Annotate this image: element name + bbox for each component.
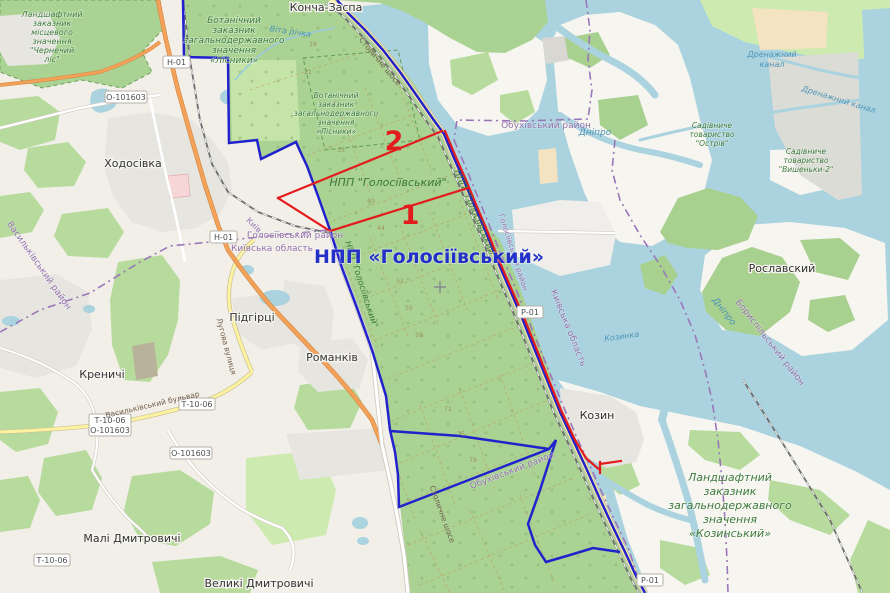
svg-text:Ландшафтний: Ландшафтний (20, 10, 82, 19)
svg-text:"Вишеньки-2": "Вишеньки-2" (779, 165, 834, 174)
svg-text:товариство: товариство (689, 130, 735, 139)
badge-o101603-south: О-101603 (170, 447, 212, 459)
badge-h01-north: Н-01 (163, 56, 190, 68)
label-romankiv: Романків (306, 351, 358, 364)
svg-text:«Лісники»: «Лісники» (316, 127, 357, 136)
svg-text:значення: значення (318, 118, 355, 127)
label-krenychi: Креничі (79, 368, 124, 381)
annotation-number-2: 2 (385, 126, 404, 157)
svg-text:загальнодержавного: загальнодержавного (294, 109, 379, 118)
svg-text:«Лісники»: «Лісники» (210, 56, 258, 66)
label-holosiivskyi-raion: Голосіївський район (247, 231, 343, 241)
svg-text:Т-10-06: Т-10-06 (35, 556, 67, 565)
svg-text:52: 52 (396, 278, 404, 285)
svg-text:21: 21 (304, 69, 312, 76)
svg-text:загальнодержавного: загальнодержавного (183, 36, 285, 46)
svg-text:33: 33 (337, 147, 345, 154)
svg-text:заказник: заказник (33, 19, 72, 28)
label-roslavskyi: Рославский (749, 262, 816, 275)
label-sadivnyche-ostriv: Садівниче товариство "Острів" (689, 121, 735, 148)
svg-text:79: 79 (469, 457, 477, 464)
svg-text:О-101603: О-101603 (90, 426, 130, 435)
svg-text:значення: значення (703, 513, 757, 526)
svg-text:заказник: заказник (704, 485, 757, 498)
badge-o101603-north: О-101603 (105, 91, 147, 103)
svg-text:Р-01: Р-01 (641, 576, 659, 585)
park-title-blue: НПП «Голосіївський» (314, 246, 544, 268)
label-kozyn: Козин (580, 409, 615, 422)
label-kyivska-oblast: Київська область (231, 244, 313, 254)
map-canvas[interactable]: Н-01 Н-01 О-101603 Р-01 Р-01 Т-10-06 Т-1… (0, 0, 890, 593)
svg-text:40: 40 (367, 198, 375, 205)
map-viewport[interactable]: Н-01 Н-01 О-101603 Р-01 Р-01 Т-10-06 Т-1… (0, 0, 890, 593)
svg-text:значення: значення (212, 46, 257, 56)
svg-text:Ботанічний: Ботанічний (314, 91, 359, 100)
label-pidhirtsi: Підгірці (229, 311, 274, 324)
svg-text:О-101603: О-101603 (106, 93, 146, 102)
svg-text:Ландшафтний: Ландшафтний (687, 471, 772, 484)
svg-text:Н-01: Н-01 (167, 58, 186, 67)
label-khodosivka: Ходосівка (104, 157, 162, 170)
svg-text:Н-01: Н-01 (214, 233, 233, 242)
label-koncha-zaspa: Конча-Заспа (290, 1, 363, 14)
svg-text:44: 44 (377, 225, 385, 232)
svg-text:55: 55 (405, 305, 413, 312)
badge-p01-south: Р-01 (637, 574, 663, 586)
svg-text:Р-01: Р-01 (521, 308, 539, 317)
svg-text:ліс": ліс" (43, 55, 59, 64)
svg-text:71: 71 (444, 406, 452, 413)
svg-text:заказник: заказник (318, 100, 354, 109)
badge-t1006-west: Т-10-06 (34, 554, 70, 566)
svg-text:канал: канал (760, 60, 785, 69)
svg-text:місцевого: місцевого (31, 28, 73, 37)
svg-text:загальнодержавного: загальнодержавного (668, 499, 792, 512)
label-obukhivskyi-north: Обухівський район (501, 121, 591, 131)
label-velyki-dmytrovychi: Великі Дмитровичі (204, 577, 313, 590)
svg-text:75: 75 (457, 431, 465, 438)
svg-text:19: 19 (309, 41, 317, 48)
label-mali-dmytrovychi: Малі Дмитровичі (83, 532, 180, 545)
svg-text:Садівниче: Садівниче (786, 147, 827, 156)
svg-text:Дренажний: Дренажний (746, 50, 796, 59)
svg-text:Садівниче: Садівниче (692, 121, 733, 130)
svg-text:значення: значення (32, 37, 71, 46)
svg-text:"Острів": "Острів" (696, 139, 729, 148)
svg-text:товариство: товариство (783, 156, 829, 165)
svg-text:«Козинський»: «Козинський» (689, 527, 771, 540)
badge-p01-mid: Р-01 (517, 306, 543, 318)
svg-text:59: 59 (415, 332, 423, 339)
badge-h01-south: Н-01 (210, 231, 237, 243)
svg-text:Ботанічний: Ботанічний (207, 16, 261, 26)
svg-text:"Чернечий: "Чернечий (30, 46, 74, 55)
label-sadivnyche-vyshenky: Садівниче товариство "Вишеньки-2" (779, 147, 834, 174)
annotation-number-1: 1 (401, 200, 420, 231)
svg-text:заказник: заказник (212, 26, 256, 36)
svg-text:О-101603: О-101603 (171, 449, 211, 458)
label-nnp-green: НПП "Голосіївський" (329, 176, 446, 189)
